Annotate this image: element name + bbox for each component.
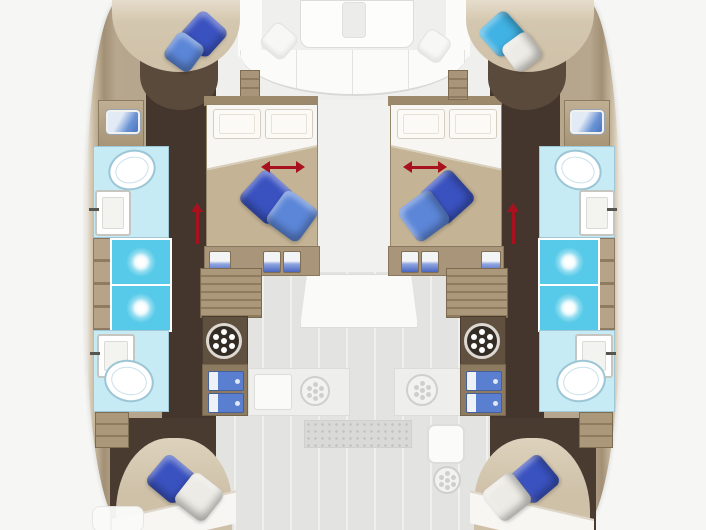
cockpit-sink-ghost [427,424,465,464]
port-washing-machine-icon [206,323,242,359]
starboard-forward-sink-icon [579,190,615,236]
storage-drawer-icon [208,371,244,391]
starboard-bedside-cabinet [448,70,468,100]
floor-grate-ghost [304,420,412,448]
headboard-pillow [213,109,261,139]
starboard-drawer-cabinet [460,364,506,416]
storage-drawer-icon [208,393,244,413]
starboard-forward-faucet-icon [607,208,617,211]
galley-hob-ghost [300,376,330,406]
starboard-shower-stall-1 [538,238,600,286]
starboard-bed-extension-arrow [406,166,444,169]
port-bed-extension-arrow [264,166,302,169]
locker-icon [421,251,439,273]
port-vanity-sink-icon [106,110,140,134]
cockpit-burner-ghost [433,466,461,494]
storage-drawer-icon [466,393,502,413]
locker-icon [283,251,301,273]
port-forward-faucet-icon [89,208,99,211]
port-companionway-arrow [196,206,199,244]
starboard-companionway-arrow [512,206,515,244]
headboard-pillow [265,109,313,139]
starboard-vanity-sink-icon [570,110,604,134]
storage-drawer-icon [466,371,502,391]
transom-step-ghost [92,506,144,530]
port-drawer-cabinet [202,364,248,416]
center-passage-floor-ghost [315,100,393,272]
starboard-shower-stall-2 [538,284,600,332]
port-aft-faucet-icon [90,352,100,355]
headboard-pillow [397,109,445,139]
headboard-pillow [449,109,497,139]
port-shower-stall-1 [110,238,172,286]
port-forward-sink-icon [95,190,131,236]
locker-icon [263,251,281,273]
galley-stove-ghost [406,374,438,406]
locker-icon [401,251,419,273]
galley-sink-ghost [254,374,292,410]
port-shower-stall-2 [110,284,172,332]
port-companionway-stairs [200,268,262,318]
catamaran-floorplan [0,0,706,530]
starboard-washing-machine-icon [464,323,500,359]
salon-table-item [342,2,366,38]
companionway-steps-ghost [300,274,418,328]
starboard-aft-faucet-icon [606,352,616,355]
starboard-companionway-stairs [446,268,508,318]
